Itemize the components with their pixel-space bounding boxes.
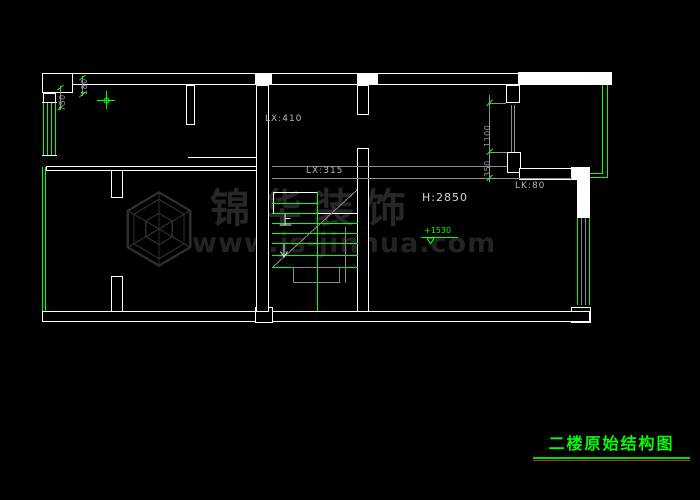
dimension-350: 350 — [483, 160, 492, 177]
elevation-label: +1530 — [424, 226, 451, 235]
elevation-marker-icon — [421, 238, 458, 245]
stair-up-label: 上 — [279, 210, 292, 229]
beam-label-mid: LX:315 — [306, 166, 343, 176]
room-height-label: H:2850 — [422, 191, 468, 204]
title-underline-red — [533, 460, 690, 461]
beam-label-top: LX:410 — [265, 114, 302, 124]
walls — [42, 72, 612, 323]
window-inner-lines — [512, 105, 586, 305]
stairs — [272, 190, 358, 311]
drawing-title: 二楼原始结构图 — [533, 430, 690, 454]
dimension-1100: 1100 — [483, 125, 492, 147]
beam-label-right: LK:80 — [515, 181, 545, 191]
dimension-180: 180 — [80, 78, 89, 95]
floor-plan — [0, 0, 700, 500]
dimension-tick-icon — [58, 75, 493, 181]
title-block: 二楼原始结构图 — [533, 430, 690, 461]
dimension-750: 750 — [58, 94, 67, 111]
title-underline-green — [533, 457, 690, 459]
cad-drawing-canvas[interactable]: 锦华装饰 www.js-jinhua.com — [0, 0, 700, 500]
point-marker-icon — [97, 91, 115, 109]
window-lines — [43, 85, 608, 311]
